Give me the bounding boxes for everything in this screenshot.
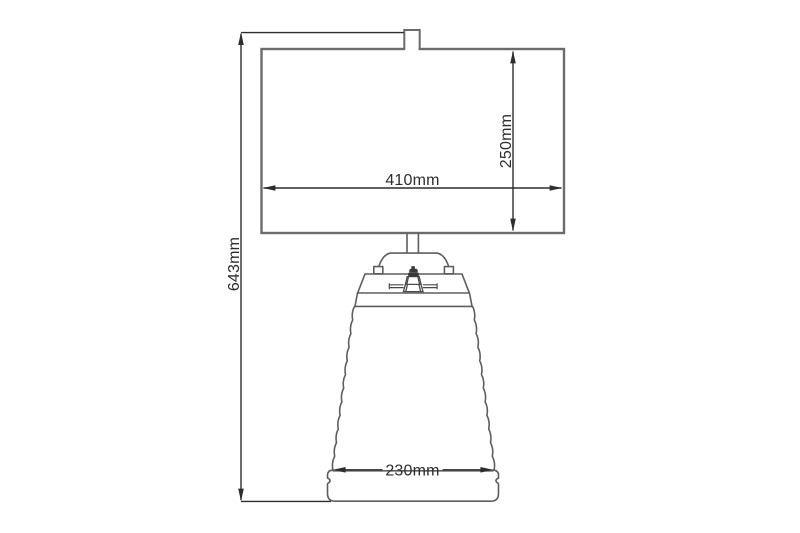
lamp-shade — [262, 49, 565, 233]
label-base-width: 230mm — [385, 463, 439, 480]
left-tab — [374, 267, 383, 274]
socket-switch — [389, 266, 437, 291]
arrow-left-icon — [333, 467, 346, 473]
label-shade-height: 250mm — [498, 114, 515, 168]
finial-band — [408, 273, 419, 277]
diagram-svg: 643mm 410mm 250mm 230mm — [0, 0, 800, 533]
arrow-right-icon — [480, 467, 493, 473]
arrow-down-icon — [238, 489, 244, 502]
label-overall-height: 643mm — [226, 237, 243, 291]
lamp-body — [332, 306, 494, 469]
lamp — [262, 28, 565, 502]
finial-cap — [409, 269, 417, 273]
label-shade-width: 410mm — [385, 172, 439, 189]
lamp-dimension-diagram: 643mm 410mm 250mm 230mm — [0, 0, 800, 533]
lamp-stem — [407, 234, 418, 253]
arrow-up-icon — [238, 32, 244, 45]
right-tab — [444, 267, 453, 274]
